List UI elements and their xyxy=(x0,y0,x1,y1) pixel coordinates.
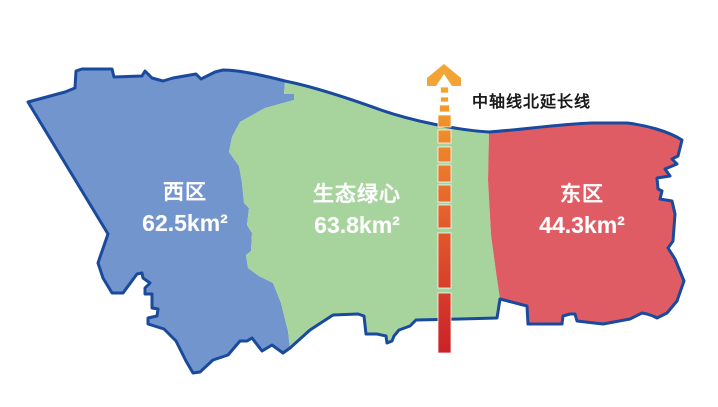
central-axis-line xyxy=(438,87,451,353)
map-canvas xyxy=(0,0,718,407)
north-arrow-icon xyxy=(427,64,461,86)
central-axis-label: 中轴线北延长线 xyxy=(472,88,591,112)
district-map: 西区 62.5km² 生态绿心 63.8km² 东区 44.3km² 中轴线北延… xyxy=(0,0,718,407)
east-district-region xyxy=(488,123,684,324)
